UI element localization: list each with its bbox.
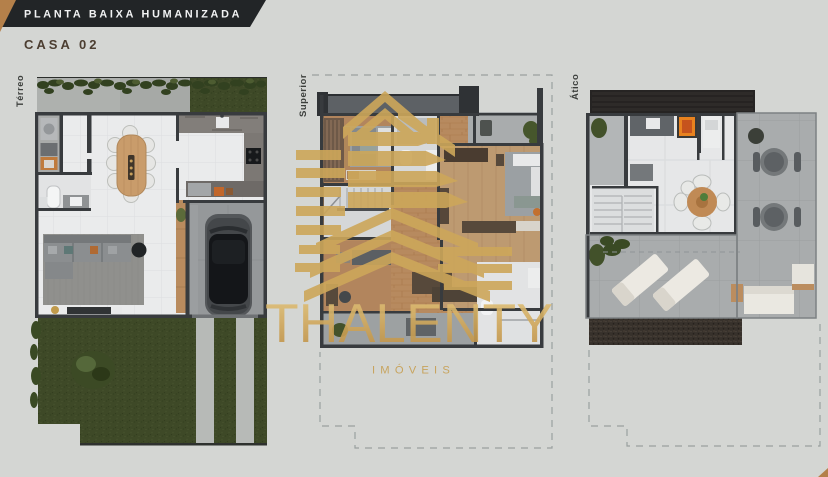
svg-text:CASA 02: CASA 02 [24,37,99,52]
svg-text:THALENTY: THALENTY [265,292,553,354]
svg-text:IMÓVEIS: IMÓVEIS [372,364,455,377]
svg-text:Térreo: Térreo [15,75,25,107]
svg-text:PLANTA BAIXA HUMANIZADA: PLANTA BAIXA HUMANIZADA [24,9,242,21]
svg-text:Superior: Superior [298,74,309,117]
svg-text:Ático: Ático [570,74,581,100]
